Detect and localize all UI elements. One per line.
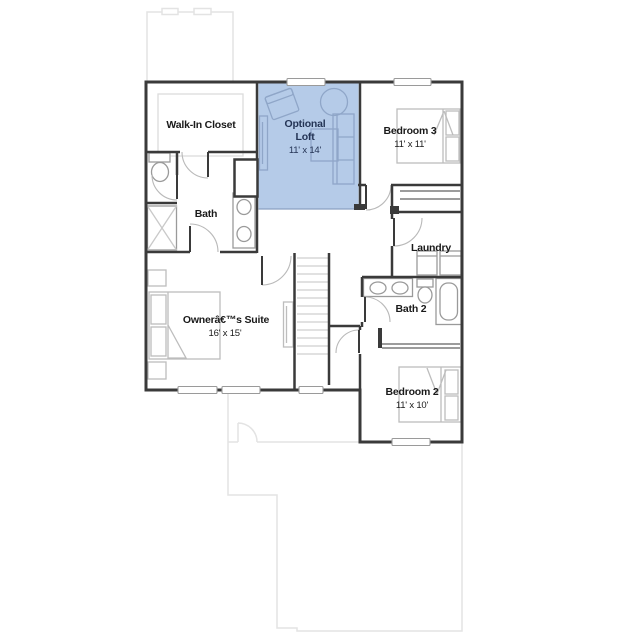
floor-plan: Walk-In Closet Bedroom 3 11' x 11' Bath … (0, 0, 640, 640)
door-arc-bath2 (365, 297, 390, 322)
dresser-icon (284, 302, 294, 347)
nightstand-icon (148, 362, 166, 379)
floor-plan-page: Walk-In Closet Bedroom 3 11' x 11' Bath … (0, 0, 640, 640)
bedroom3-dims: 11' x 11' (394, 139, 426, 150)
lower-floor-window (194, 9, 211, 15)
shower-icon (148, 206, 177, 250)
bedroom2-closet-jamb (378, 328, 382, 348)
lower-floor-window (162, 9, 178, 15)
loft-label-line1: Optional (285, 118, 326, 130)
bedroom2-label: Bedroom 2 (385, 386, 438, 398)
door-arc-bath (190, 224, 218, 252)
loft-wall-cap (354, 204, 365, 210)
owners-suite-label: Ownerâ€™s Suite (183, 314, 270, 326)
stair-treads (297, 258, 328, 354)
door-arc-bedroom2 (336, 330, 359, 353)
laundry-label: Laundry (411, 242, 451, 254)
staircase (297, 258, 328, 354)
window-loft (287, 79, 325, 86)
door-arc-owners-suite (262, 256, 291, 285)
bath2-label: Bath 2 (396, 303, 427, 315)
lower-floor-door-arc (238, 423, 257, 442)
toilet-icon-bath2 (417, 279, 433, 303)
laundry-wall-jamb (390, 206, 399, 214)
dryer-icon (440, 251, 461, 275)
door-arc-bedroom3 (366, 185, 391, 210)
vanity-sink-icon-bath (233, 193, 255, 248)
bedroom2-dims: 11' x 10' (396, 400, 429, 411)
loft-label-line2: Loft (295, 131, 315, 143)
window-bedroom2 (392, 439, 430, 446)
nightstand-icon (148, 270, 166, 286)
bedroom3-label: Bedroom 3 (383, 125, 436, 137)
chase-box (235, 160, 258, 197)
bath-label: Bath (195, 208, 218, 220)
washer-icon (417, 251, 437, 275)
window-stair-landing (299, 387, 323, 394)
bathtub-icon (436, 279, 462, 325)
walk-in-closet-label: Walk-In Closet (166, 119, 236, 131)
loft-dims: 11' x 14' (289, 145, 322, 156)
window-bedroom3 (394, 79, 431, 86)
window-owners-suite-1 (178, 387, 217, 394)
vanity-sink-icon-bath2 (364, 279, 413, 297)
lower-floor-top-rect (147, 12, 233, 82)
window-owners-suite-2 (222, 387, 260, 394)
lower-floor-footprint (228, 392, 462, 631)
owners-suite-dims: 16' x 15' (209, 328, 242, 339)
